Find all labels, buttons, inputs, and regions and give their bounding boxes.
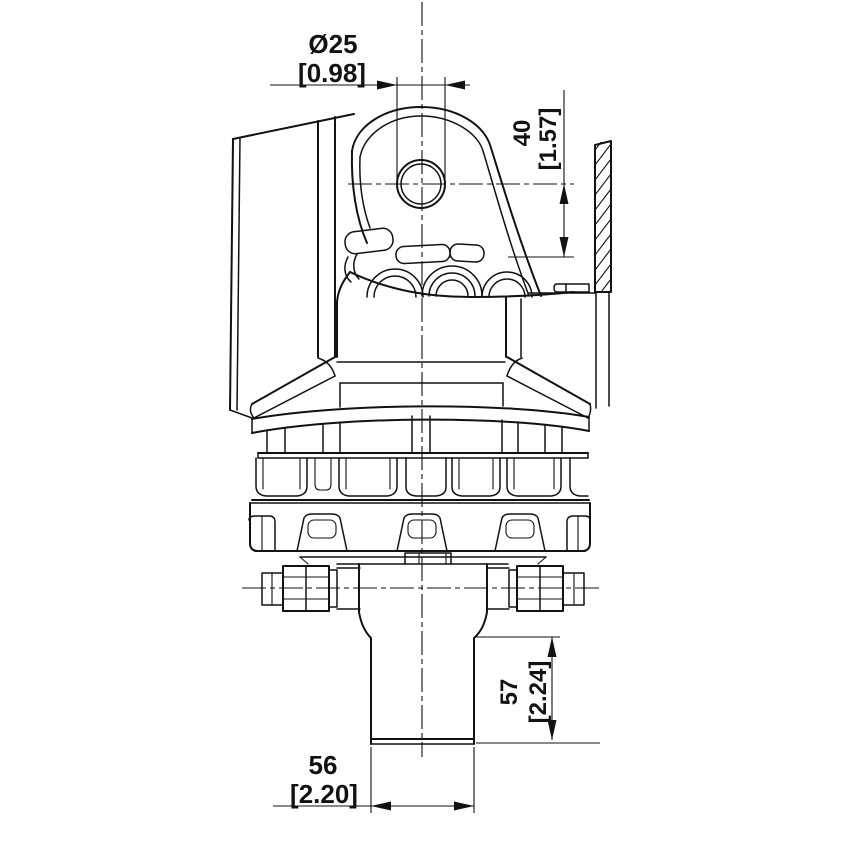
stop-block <box>554 284 589 292</box>
technical-drawing-canvas: Ø25 [0.98] 40 [1.57] 57 [2.24] 56 [2.20] <box>0 0 842 842</box>
dimension-shaft-width: 56 [2.20] <box>273 747 474 813</box>
dim-shaft-length-inch: [2.24] <box>525 661 552 724</box>
dim-eye-inch: [1.57] <box>535 108 562 171</box>
dim-shaft-width-inch: [2.20] <box>290 779 358 809</box>
left-frame-plate <box>230 114 354 418</box>
bottom-plate <box>300 553 546 564</box>
dim-shaft-width-mm: 56 <box>309 750 338 780</box>
dim-hole-inch: [0.98] <box>298 58 366 88</box>
rotator-drawing: Ø25 [0.98] 40 [1.57] 57 [2.24] 56 [2.20] <box>0 0 842 842</box>
dim-eye-mm: 40 <box>509 120 536 147</box>
dimension-shaft-length: 57 [2.24] <box>476 637 600 743</box>
shaft <box>359 564 487 744</box>
center-boss <box>405 553 451 564</box>
dim-shaft-length-mm: 57 <box>496 679 523 706</box>
ring-lugs <box>297 514 545 551</box>
hatching <box>595 129 611 313</box>
link-assembly <box>344 227 574 297</box>
castellated-ring <box>249 453 590 551</box>
skirt-flange <box>250 357 590 453</box>
dim-hole-mm: Ø25 <box>308 29 357 59</box>
dimension-hole-diameter: Ø25 [0.98] <box>270 29 470 180</box>
